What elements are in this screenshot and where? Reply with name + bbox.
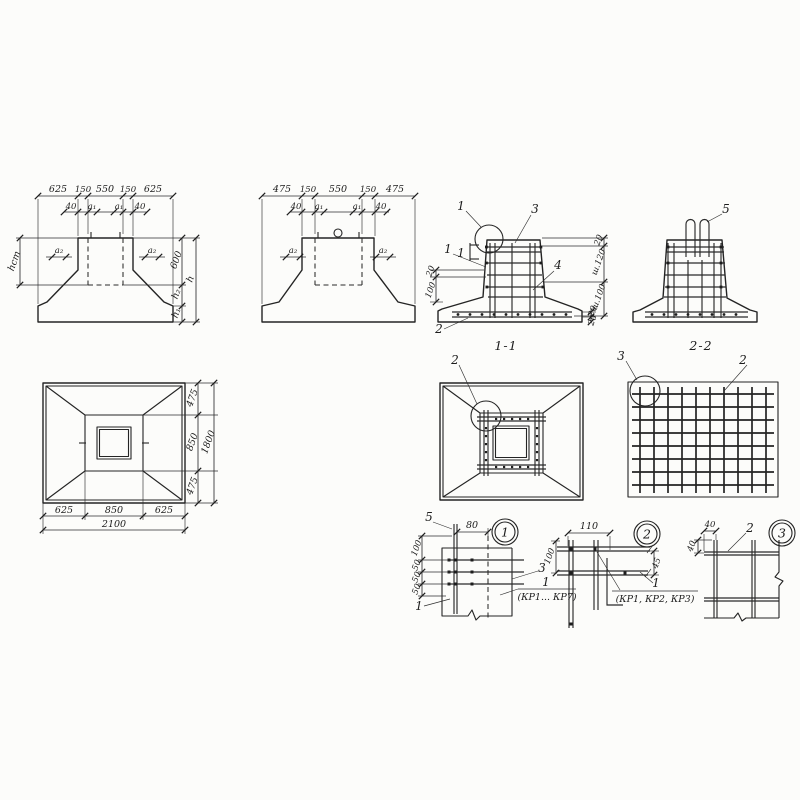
svg-text:1: 1 (542, 575, 550, 589)
dim-label: 80 (466, 520, 478, 531)
svg-text:3: 3 (778, 526, 786, 541)
dim-label: a₂ (289, 246, 298, 256)
dim-label: h₂ (170, 287, 184, 300)
dim-label: 475 (272, 184, 291, 195)
svg-text:3: 3 (617, 349, 625, 363)
svg-text:2: 2 (434, 322, 443, 336)
footing-outline (262, 238, 415, 322)
svg-text:2: 2 (642, 527, 651, 542)
callout-1: 1 (415, 599, 450, 613)
dim-label: 45 (650, 557, 663, 572)
callout-3: 3 (617, 349, 637, 380)
svg-text:2: 2 (738, 353, 747, 367)
dim-label: h₁ (170, 307, 184, 320)
callout-5: 5 (707, 202, 730, 222)
dim-label: 40 (134, 202, 146, 212)
svg-text:1: 1 (415, 599, 423, 613)
detail-3: 40 40 2 3 (685, 520, 795, 621)
svg-text:2: 2 (745, 521, 754, 535)
svg-text:3: 3 (531, 202, 539, 216)
callout-3: 3 (512, 561, 546, 579)
dim-label: 2100 (101, 519, 126, 530)
dim-label: 150 (360, 185, 377, 195)
dim-label: 850 (105, 505, 123, 516)
svg-text:1: 1 (457, 199, 465, 213)
dim-label: 625 (55, 505, 73, 516)
dim-label: 100 (410, 538, 425, 557)
dim-label: a₂ (379, 246, 388, 256)
section-caption: 2-2 (688, 338, 712, 353)
callout-1: 1 (457, 199, 481, 227)
lifting-loop (334, 229, 342, 237)
dim-label: 150 (300, 185, 317, 195)
dim-label: a₂ (148, 246, 157, 256)
dim-label: h (184, 274, 196, 284)
dim-label: 100 (543, 546, 558, 565)
section-view-b: 475 150 550 150 475 40 a₁ a₁ 40 a₂ a₂ (259, 184, 418, 322)
dim-label: ш.120 (590, 247, 609, 276)
dim-label: 625 (49, 184, 67, 195)
detail-circle-1 (475, 225, 503, 253)
dim-label: hст (6, 250, 23, 273)
dim-label: 850 (184, 432, 201, 453)
svg-text:1: 1 (652, 576, 660, 590)
svg-text:(КР1, КР2, КР3): (КР1, КР2, КР3) (616, 594, 695, 605)
dim-label: 1800 (199, 429, 218, 455)
dim-label: 40 (704, 520, 716, 530)
plan-view-dimensions: 625 850 625 2100 475 850 475 1800 (40, 380, 218, 534)
dim-label: 110 (580, 521, 598, 532)
section-view-a: 625 150 550 150 625 40 a₁ a₁ 40 hст a₂ a… (6, 184, 200, 325)
callout-5: 5 (425, 510, 452, 529)
dim-label: 550 (96, 184, 114, 195)
svg-text:1: 1 (457, 246, 465, 260)
svg-text:1: 1 (501, 525, 509, 540)
section-1-1: 1 3 4 1 2 1 20 ш.120 ш.100 (424, 199, 609, 353)
dim-label: 150 (75, 185, 92, 195)
callout-2: 2 (450, 353, 477, 404)
callout-2: 2 (724, 353, 747, 391)
callout-2: 2 (728, 521, 754, 551)
dim-label: 40 (65, 202, 77, 212)
dim-label: 600 (168, 250, 185, 271)
dim-label: 100 (424, 280, 439, 299)
detail-circle-2 (471, 401, 501, 431)
detail-badge-1: 1 (492, 519, 518, 545)
dim-label: 625 (144, 184, 162, 195)
mesh-plan: 3 2 (617, 349, 778, 497)
callout-2: 2 (434, 318, 468, 336)
svg-text:4: 4 (553, 258, 562, 272)
section-cut-mark: 1 (457, 243, 479, 261)
callout-1b: 1 (444, 242, 486, 267)
detail-badge-2: 2 (634, 521, 660, 547)
dim-label: 475 (385, 184, 404, 195)
svg-text:(КР1... КР7): (КР1... КР7) (517, 592, 576, 603)
foundation-drawing: 625 150 550 150 625 40 a₁ a₁ 40 hст a₂ a… (0, 0, 800, 800)
dim-label: a₂ (55, 246, 64, 256)
section-2-2: 5 2-2 (633, 202, 757, 353)
dim-label: 150 (120, 185, 137, 195)
blueprint-canvas: 625 150 550 150 625 40 a₁ a₁ 40 hст a₂ a… (0, 0, 800, 800)
section-caption: 1-1 (494, 338, 517, 353)
svg-text:5: 5 (722, 202, 730, 216)
lifting-loop-bars (686, 220, 709, 258)
plan-view-reinforcement: 2 (440, 353, 583, 500)
svg-text:2: 2 (450, 353, 459, 367)
mark-label: 1 (КР1, КР2, КР3) (597, 552, 698, 605)
detail-badge-3: 3 (769, 520, 795, 546)
dim-label: 550 (329, 184, 347, 195)
detail-2: 110 100 45 1 (КР1, КР2, КР3) 2 (543, 521, 698, 628)
callout-3: 3 (515, 202, 539, 243)
svg-text:1: 1 (444, 242, 452, 256)
detail-circle-3 (630, 376, 660, 406)
svg-text:5: 5 (425, 510, 433, 524)
dim-label: 625 (155, 505, 173, 516)
